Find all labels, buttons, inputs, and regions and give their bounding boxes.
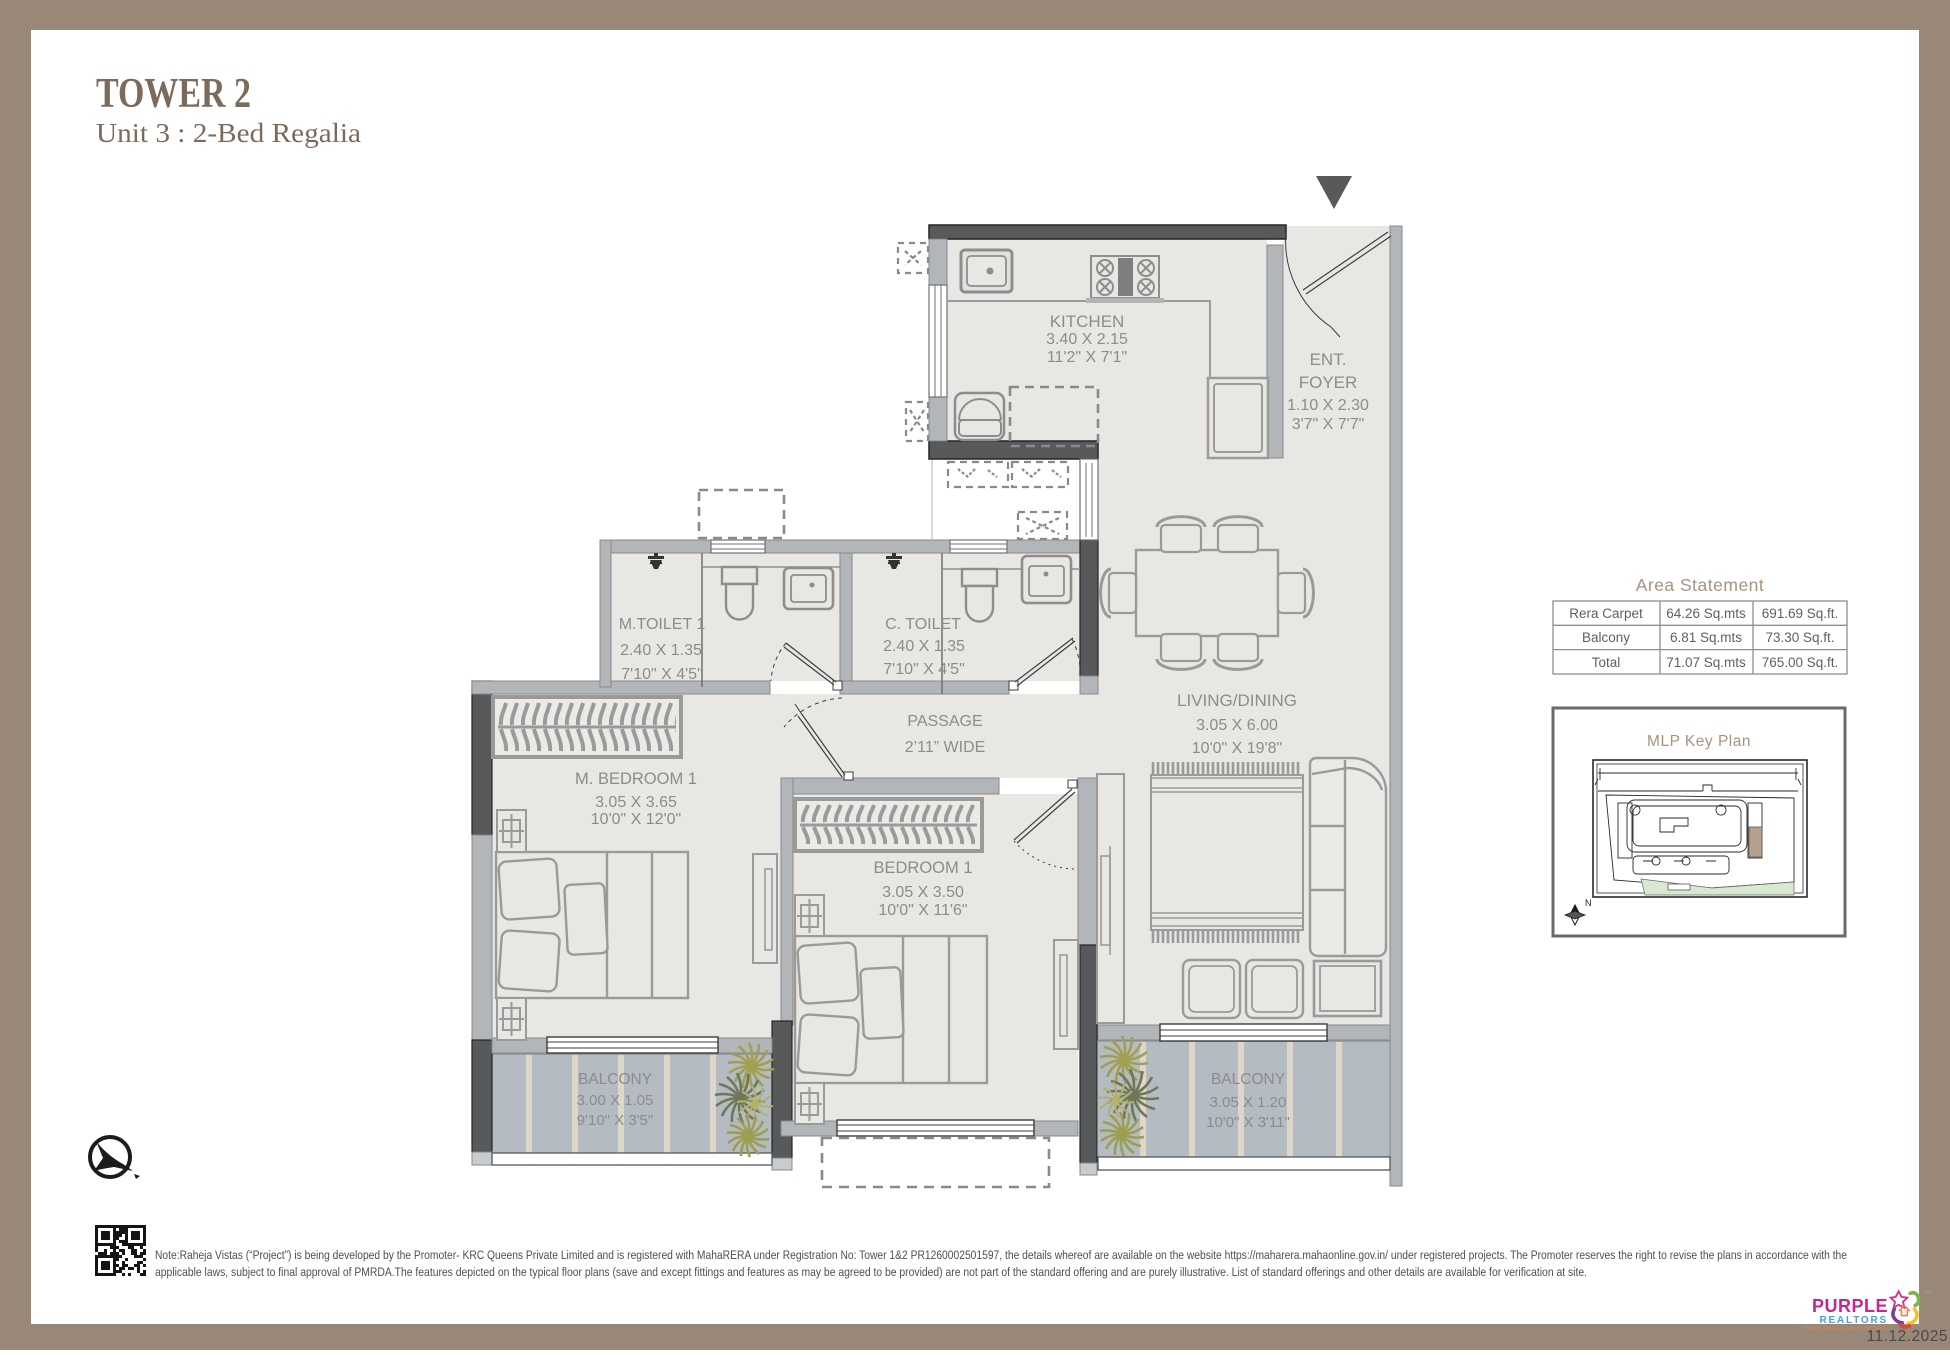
svg-text:73.30 Sq.ft.: 73.30 Sq.ft. [1765, 630, 1834, 645]
svg-text:PURPLE: PURPLE [1812, 1296, 1888, 1316]
svg-text:Balcony: Balcony [1582, 630, 1630, 645]
svg-text:691.69 Sq.ft.: 691.69 Sq.ft. [1762, 606, 1839, 621]
svg-text:Unit 3 : 2-Bed Regalia: Unit 3 : 2-Bed Regalia [96, 118, 361, 148]
svg-text:FOYER: FOYER [1299, 373, 1358, 392]
svg-text:3.40 X 2.15: 3.40 X 2.15 [1046, 331, 1128, 348]
svg-text:TOWER 2: TOWER 2 [96, 71, 251, 117]
svg-text:7'10" X 4'5": 7'10" X 4'5" [883, 661, 965, 678]
svg-text:2.40 X 1.35: 2.40 X 1.35 [620, 642, 702, 659]
svg-text:Rera Carpet: Rera Carpet [1569, 606, 1643, 621]
svg-text:9'10" X 3'5": 9'10" X 3'5" [577, 1112, 653, 1129]
svg-text:Total: Total [1592, 655, 1621, 670]
svg-text:applicable laws, subject to fi: applicable laws, subject to final approv… [155, 1265, 1587, 1279]
svg-text:3.05 X 1.20: 3.05 X 1.20 [1210, 1094, 1287, 1111]
svg-text:M.TOILET 1: M.TOILET 1 [619, 616, 706, 633]
svg-text:TM: TM [1924, 1290, 1931, 1296]
svg-text:PASSAGE: PASSAGE [907, 713, 982, 730]
svg-text:2.40 X 1.35: 2.40 X 1.35 [883, 638, 965, 655]
svg-text:1.10 X 2.30: 1.10 X 2.30 [1287, 397, 1369, 414]
svg-text:3.05 X 3.50: 3.05 X 3.50 [882, 884, 964, 901]
svg-text:6.81 Sq.mts: 6.81 Sq.mts [1670, 630, 1742, 645]
svg-text:BALCONY: BALCONY [1211, 1071, 1285, 1088]
svg-text:M. BEDROOM 1: M. BEDROOM 1 [575, 770, 697, 788]
svg-text:ENT.: ENT. [1310, 350, 1347, 369]
svg-text:Note:Raheja Vistas (“Project”): Note:Raheja Vistas (“Project”) is being … [155, 1248, 1847, 1262]
svg-text:10'0" X 3'11": 10'0" X 3'11" [1206, 1114, 1290, 1131]
svg-text:64.26 Sq.mts: 64.26 Sq.mts [1666, 606, 1746, 621]
svg-text:KITCHEN: KITCHEN [1050, 312, 1125, 331]
svg-text:3.05 X 3.65: 3.05 X 3.65 [595, 794, 677, 811]
svg-text:71.07 Sq.mts: 71.07 Sq.mts [1666, 655, 1746, 670]
svg-text:7'10" X 4'5": 7'10" X 4'5" [621, 666, 703, 683]
svg-text:765.00 Sq.ft.: 765.00 Sq.ft. [1762, 655, 1839, 670]
svg-text:10'0" X 19'8": 10'0" X 19'8" [1192, 740, 1282, 757]
svg-text:MLP Key Plan: MLP Key Plan [1647, 733, 1751, 750]
svg-text:REALTORS: REALTORS [1820, 1315, 1888, 1326]
svg-text:3'7" X 7'7": 3'7" X 7'7" [1292, 416, 1365, 433]
svg-text:BALCONY: BALCONY [578, 1071, 652, 1088]
svg-text:11.12.2025: 11.12.2025 [1867, 1328, 1948, 1345]
svg-text:10'0" X 11'6": 10'0" X 11'6" [878, 902, 967, 919]
svg-text:C. TOILET: C. TOILET [885, 616, 961, 633]
svg-text:2’11” WIDE: 2’11” WIDE [905, 739, 986, 756]
svg-text:LIVING/DINING: LIVING/DINING [1177, 691, 1297, 710]
svg-text:11'2" X 7'1": 11'2" X 7'1" [1047, 349, 1127, 366]
svg-text:BEDROOM 1: BEDROOM 1 [873, 859, 972, 877]
svg-text:N: N [1585, 898, 1592, 908]
svg-text:3.00 X 1.05: 3.00 X 1.05 [577, 1092, 654, 1109]
svg-text:Area Statement: Area Statement [1636, 575, 1765, 595]
svg-text:3.05 X 6.00: 3.05 X 6.00 [1196, 717, 1278, 734]
svg-text:10'0" X 12'0": 10'0" X 12'0" [591, 811, 681, 828]
